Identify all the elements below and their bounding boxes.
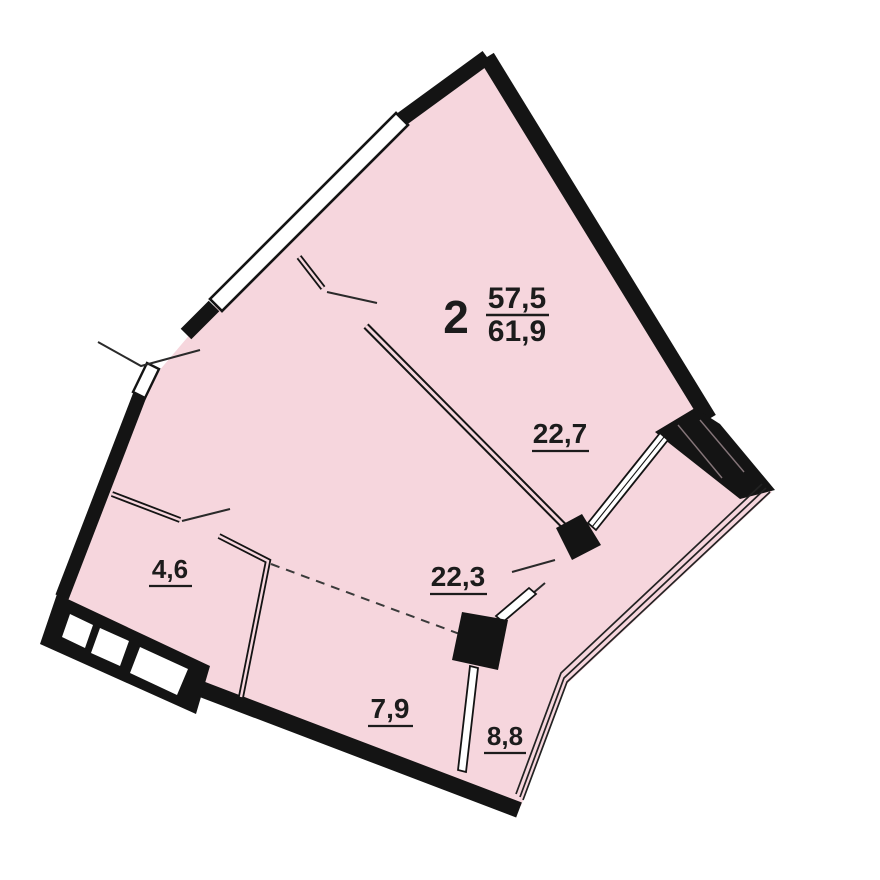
room-label-living: 22,7 — [533, 418, 588, 449]
floor-plan-page: 2 57,5 61,9 22,7 22,3 4,6 7,9 8,8 — [0, 0, 880, 880]
apartment-total-area: 61,9 — [488, 315, 546, 348]
apartment-rooms-count: 2 — [443, 291, 469, 343]
room-label-hallway: 4,6 — [152, 554, 188, 584]
floor-plan-drawing: 2 57,5 61,9 22,7 22,3 4,6 7,9 8,8 — [0, 0, 880, 880]
balcony-pillar-2 — [452, 612, 508, 670]
apartment-living-area: 57,5 — [488, 282, 546, 315]
room-label-kitchen-living: 22,3 — [431, 561, 486, 592]
room-label-balcony: 8,8 — [487, 721, 523, 751]
room-label-kitchen: 7,9 — [371, 693, 410, 724]
